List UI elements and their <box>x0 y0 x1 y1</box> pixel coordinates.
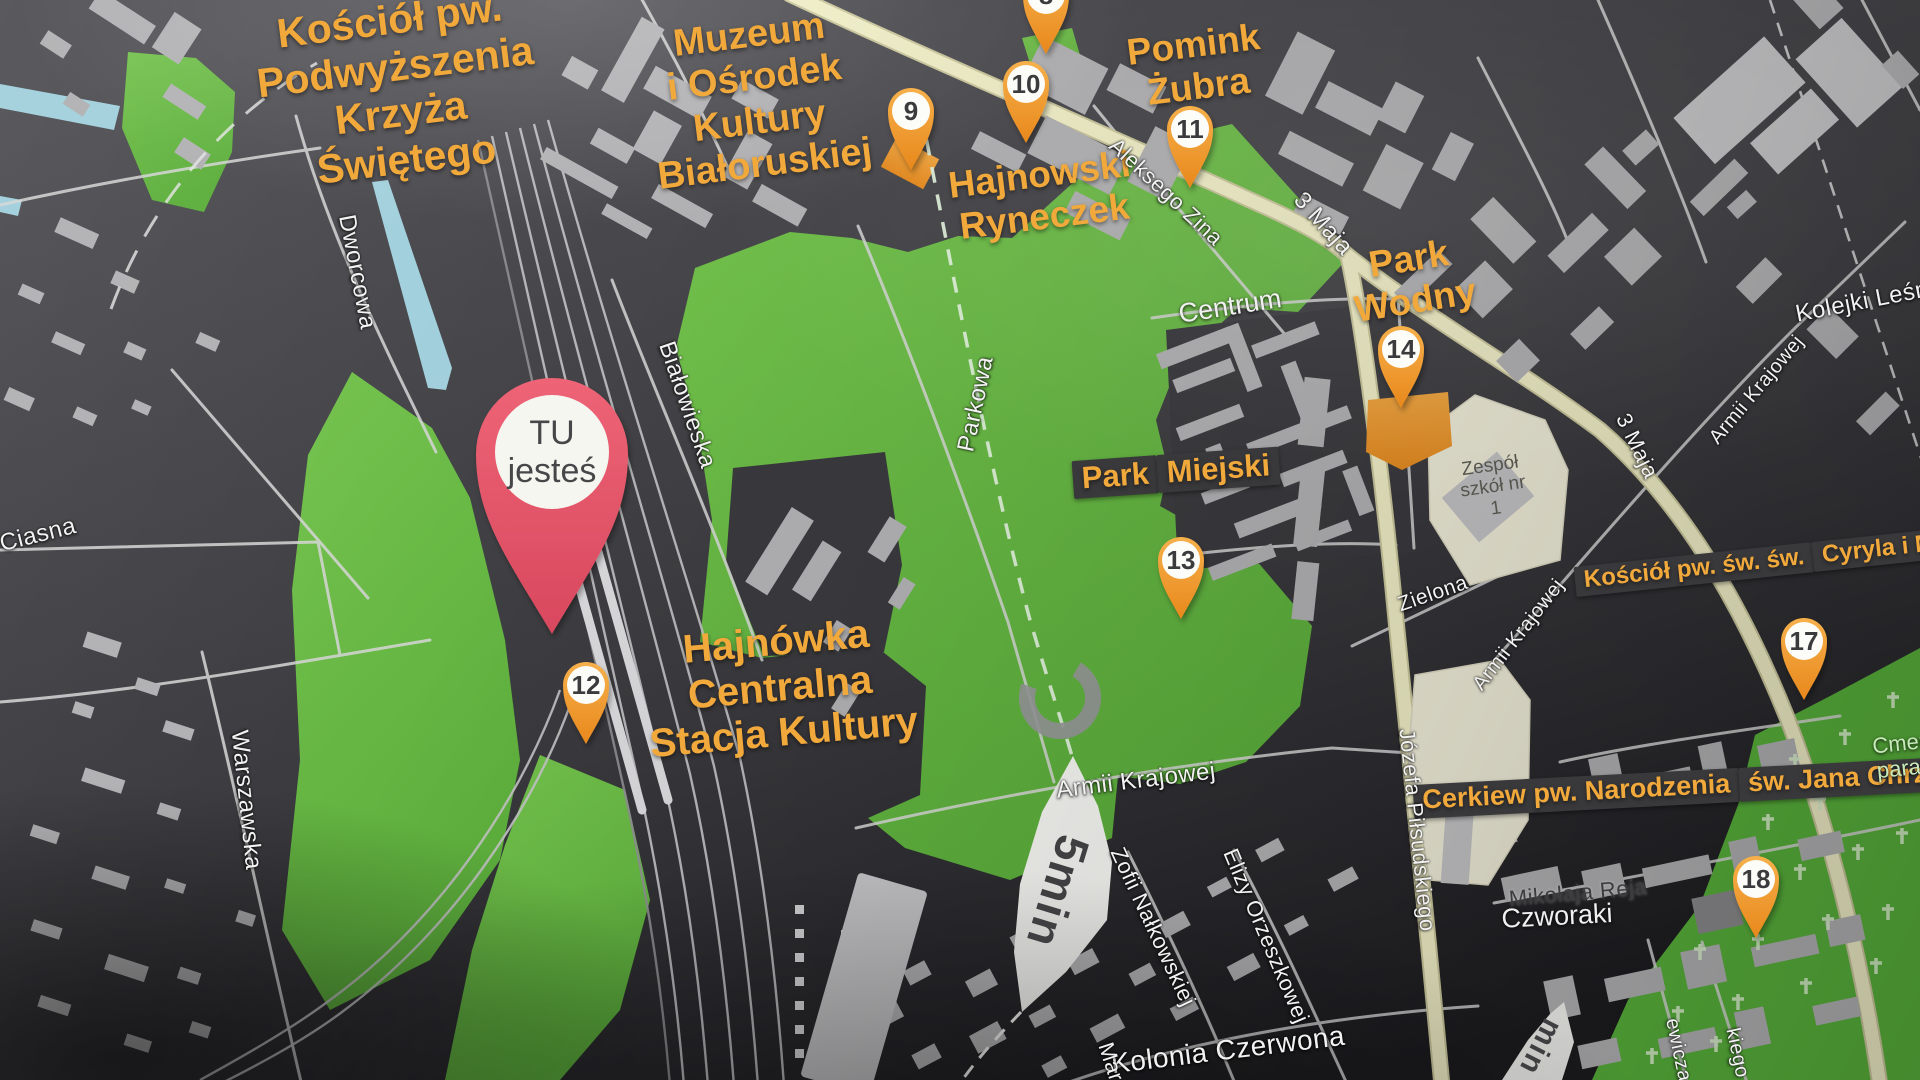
marker-number: 8 <box>1039 0 1053 10</box>
marker-number: 10 <box>1012 69 1041 99</box>
map-marker-12: 12 <box>563 662 609 744</box>
map-marker-13: 13 <box>1158 537 1204 619</box>
marker-number: 13 <box>1167 545 1196 575</box>
map-marker-17: 17 <box>1781 618 1827 700</box>
you-are-here-text: TU <box>529 414 574 452</box>
map-board: Kościół pw.PodwyższeniaKrzyżaŚwiętegoMuz… <box>0 0 1920 1080</box>
marker-number: 11 <box>1176 114 1204 144</box>
marker-number: 18 <box>1742 864 1771 894</box>
marker-number: 14 <box>1387 334 1416 364</box>
marker-number: 17 <box>1790 626 1819 656</box>
marker-number: 9 <box>904 96 918 126</box>
you-are-here-text: jesteś <box>507 452 597 490</box>
you-are-here-pin: TUjesteś <box>476 378 628 634</box>
map-marker-9: 9 <box>888 88 934 170</box>
map-marker-18: 18 <box>1733 856 1779 938</box>
map-marker-11: 11 <box>1167 106 1213 188</box>
map-marker-14: 14 <box>1378 326 1424 408</box>
map-marker-8: 8 <box>1023 0 1069 54</box>
map-marker-10: 10 <box>1003 61 1049 143</box>
marker-number: 12 <box>572 670 601 700</box>
marker-layer: 8910111213141718TUjesteś <box>0 0 1920 1080</box>
